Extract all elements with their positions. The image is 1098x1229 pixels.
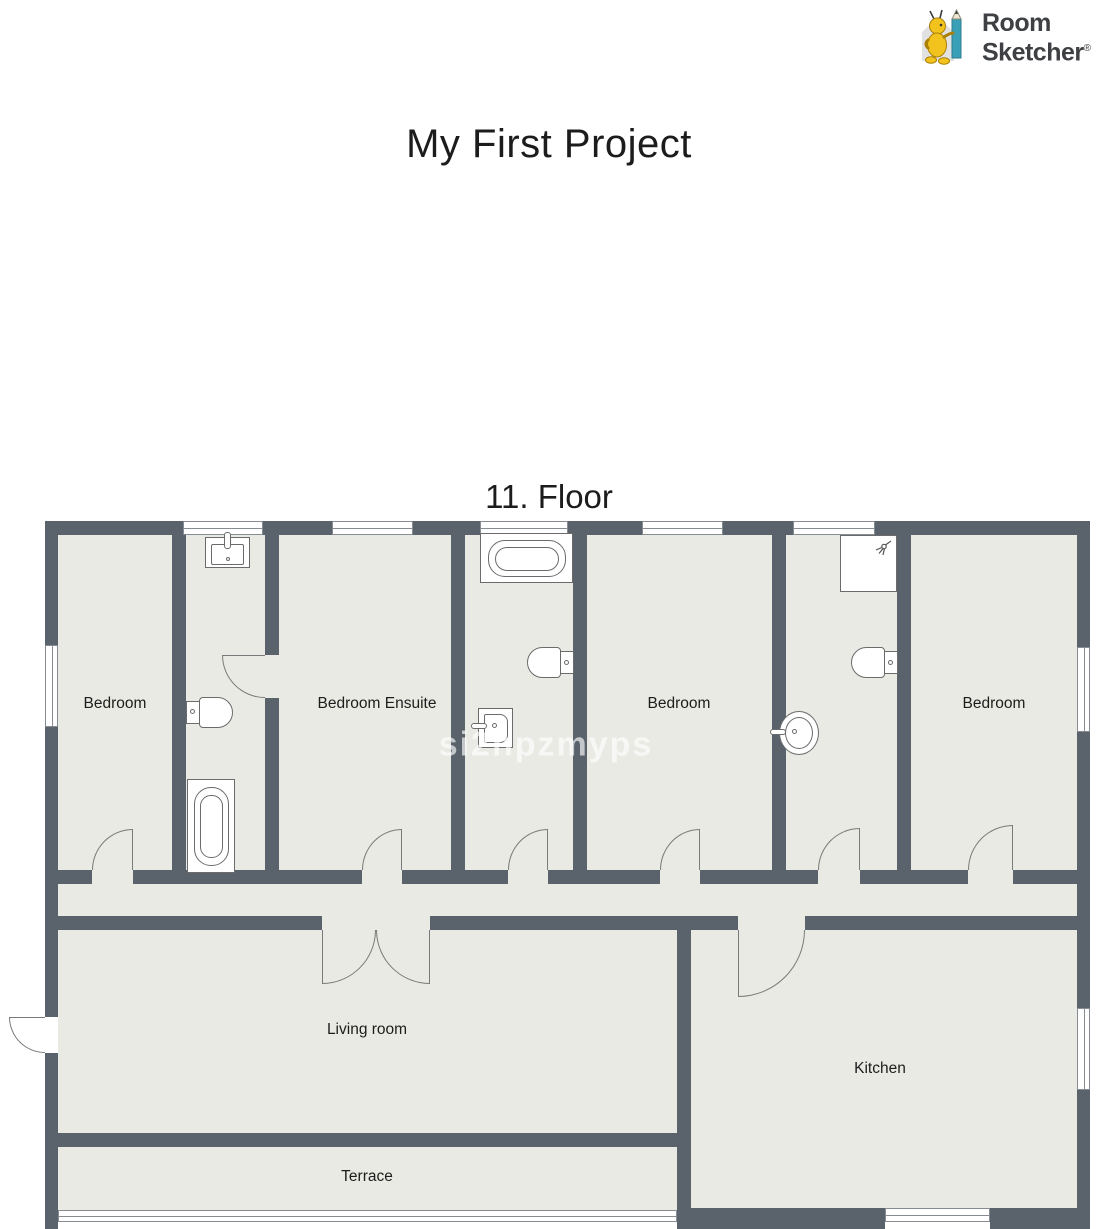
flush-button-icon <box>190 709 195 714</box>
logo-line1: Room <box>982 9 1051 37</box>
floor-plan-page: RoomSketcher® My First Project 11. Floor <box>0 0 1098 1229</box>
room-label-bedroom-ensuite: Bedroom Ensuite <box>318 695 437 713</box>
window <box>885 1208 990 1222</box>
shower <box>840 535 897 592</box>
wall <box>172 535 186 870</box>
entry-door-swing <box>9 1017 45 1053</box>
wall <box>45 870 92 884</box>
drain-icon <box>792 729 797 734</box>
terrace-railing <box>58 1210 677 1222</box>
toilet <box>851 647 885 678</box>
bathtub-basin <box>495 547 559 571</box>
drain-icon <box>226 557 230 561</box>
room-label-bedroom-2: Bedroom <box>648 695 711 713</box>
wall <box>45 521 58 1017</box>
wall <box>451 535 465 870</box>
washbasin-bowl <box>785 717 813 749</box>
window <box>1077 647 1090 732</box>
wall <box>430 916 738 930</box>
window <box>642 521 723 535</box>
logo-line2: Sketcher <box>982 38 1084 66</box>
toilet <box>199 697 233 728</box>
room-label-bedroom-1: Bedroom <box>84 695 147 713</box>
wall <box>265 535 279 655</box>
flush-button-icon <box>564 660 569 665</box>
window <box>183 521 263 535</box>
room-label-terrace: Terrace <box>341 1168 393 1186</box>
wall <box>402 870 508 884</box>
room-label-kitchen: Kitchen <box>854 1060 906 1078</box>
door-threshold <box>45 1017 58 1053</box>
wall <box>772 535 786 870</box>
window <box>45 645 58 727</box>
wall <box>691 1208 885 1229</box>
roomsketcher-mascot-icon <box>916 6 980 68</box>
wall <box>133 870 362 884</box>
wall <box>990 1208 1090 1229</box>
floor-label: 11. Floor <box>0 478 1098 516</box>
wall <box>897 535 911 870</box>
room-label-bedroom-3: Bedroom <box>963 695 1026 713</box>
room-label-living-room: Living room <box>327 1021 407 1039</box>
window <box>793 521 875 535</box>
wall <box>573 535 587 870</box>
logo-wordmark: RoomSketcher® <box>982 10 1091 65</box>
wall <box>677 930 691 1229</box>
wall <box>265 698 279 870</box>
toilet <box>527 647 561 678</box>
flush-button-icon <box>888 660 893 665</box>
bathtub-basin <box>200 795 223 858</box>
wall <box>860 870 968 884</box>
page-title: My First Project <box>0 122 1098 167</box>
wall <box>45 916 322 930</box>
wall <box>548 870 660 884</box>
faucet-icon <box>770 729 786 735</box>
registered-mark: ® <box>1084 43 1091 54</box>
wall <box>805 916 1090 930</box>
wall <box>1013 870 1090 884</box>
faucet-icon <box>224 532 231 549</box>
wall <box>45 1133 691 1147</box>
window <box>332 521 413 535</box>
watermark: si2npzmyps <box>439 726 654 765</box>
window <box>1077 1008 1090 1090</box>
wall <box>700 870 818 884</box>
shower-head-icon <box>869 537 895 563</box>
roomsketcher-logo: RoomSketcher® <box>916 6 1092 70</box>
